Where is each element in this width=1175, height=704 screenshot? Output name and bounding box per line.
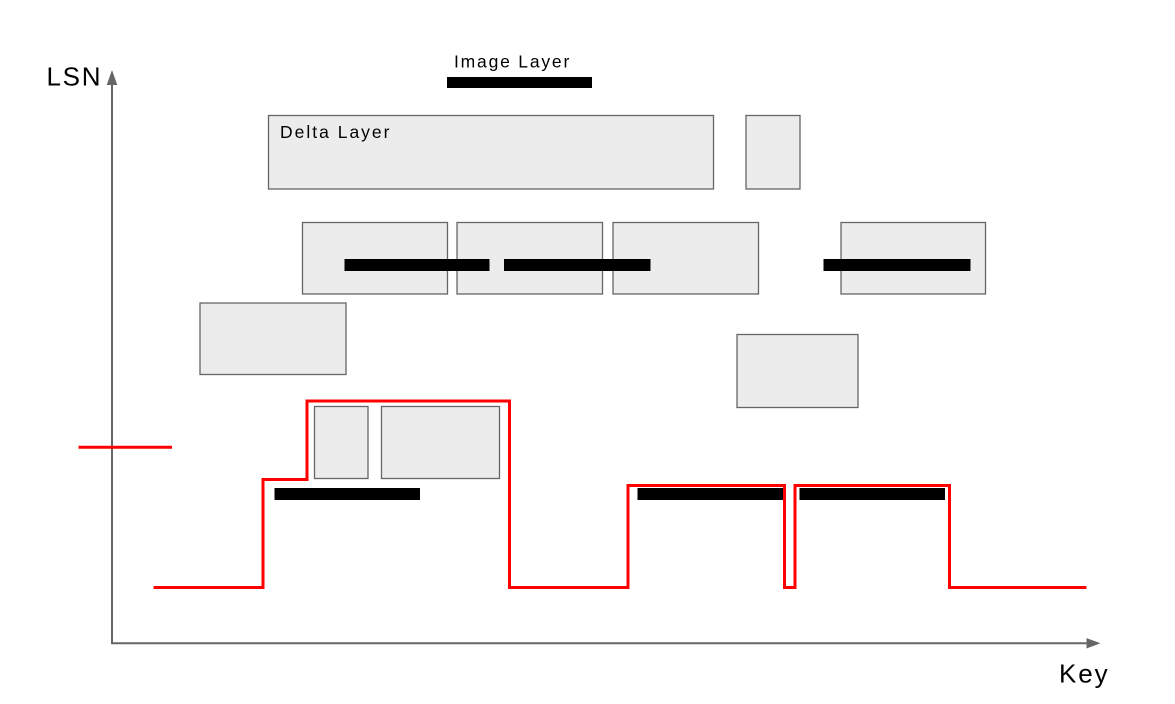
svg-text:Image Layer: Image Layer [454,52,571,72]
svg-text:Key: Key [1059,659,1110,689]
svg-text:LSN: LSN [47,62,103,92]
svg-text:Delta Layer: Delta Layer [280,122,392,142]
